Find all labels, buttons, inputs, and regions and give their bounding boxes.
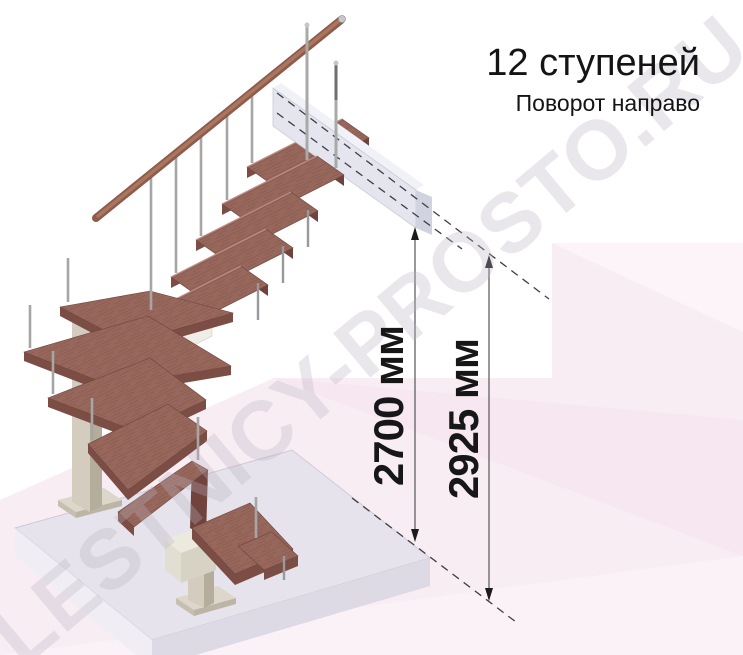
page-subtitle: Поворот направо — [430, 88, 700, 118]
handrail-end-cap — [339, 16, 346, 23]
stair-diagram: LESTNICY-PROSTO.RU 12 ступеней Поворот н… — [0, 0, 743, 655]
dimension-label-2700: 2700 мм — [369, 306, 409, 506]
dimension-label-2925: 2925 мм — [444, 319, 484, 519]
page-title: 12 ступеней — [430, 38, 700, 88]
